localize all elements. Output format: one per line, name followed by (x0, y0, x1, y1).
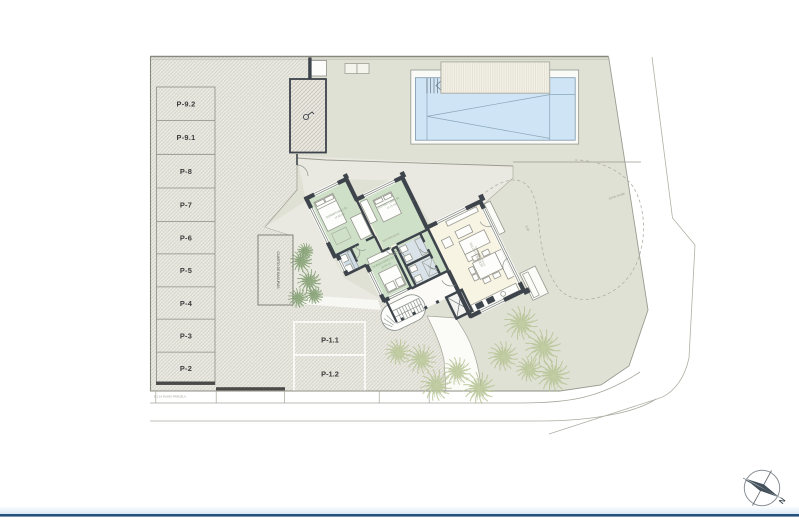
svg-text:E 1:14 PLANO PARCELA: E 1:14 PLANO PARCELA (154, 394, 186, 398)
svg-text:P-6: P-6 (180, 234, 192, 243)
svg-text:P-3: P-3 (180, 331, 192, 340)
svg-text:P-2: P-2 (180, 364, 192, 373)
svg-text:P-9.1: P-9.1 (177, 133, 196, 142)
svg-text:P-1.1: P-1.1 (321, 336, 339, 345)
svg-text:P-1.2: P-1.2 (321, 370, 339, 379)
svg-text:P-9.2: P-9.2 (177, 100, 196, 109)
svg-text:P-7: P-7 (180, 201, 192, 210)
svg-text:P-8: P-8 (180, 167, 192, 176)
svg-text:CUARTO DE BASURAS: CUARTO DE BASURAS (276, 252, 280, 290)
svg-text:P-5: P-5 (180, 266, 192, 275)
svg-text:N: N (777, 496, 787, 506)
svg-text:P-4: P-4 (180, 299, 193, 308)
